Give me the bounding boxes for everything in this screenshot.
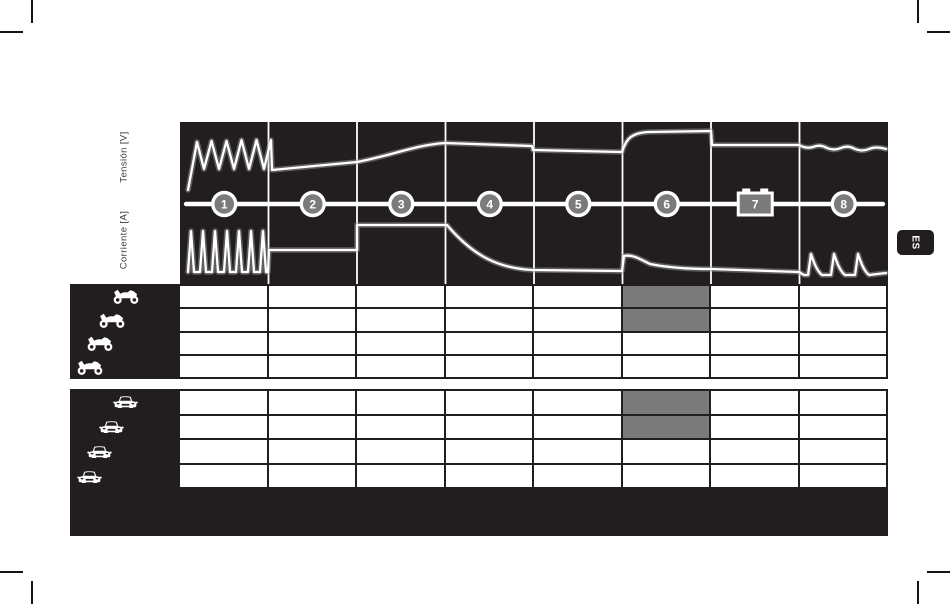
table-cell [623,356,710,377]
table-cell [357,309,444,330]
table-cell [534,465,621,488]
table-cell [180,465,267,488]
table-cell [269,356,356,377]
table-cell [711,333,798,354]
table-cell [800,416,887,439]
crop-mark-bottom-right-v [917,581,919,604]
table-cell [446,333,533,354]
charging-curve-canvas: 12345678 [180,122,888,284]
table-cell [534,286,621,307]
table-cell [711,416,798,439]
table-cell [446,465,533,488]
table-cell [534,333,621,354]
table-cell-highlighted [623,416,710,439]
table-cell [623,440,710,463]
motorcycle-battery-table [70,284,888,379]
motorcycle-table-sidebar [70,284,180,379]
language-tab-es: ES [897,230,934,255]
table-cell [357,333,444,354]
car-icon [86,444,113,460]
table-cell [800,440,887,463]
table-cell [180,356,267,377]
voltage-curve-glow [188,131,886,190]
table-cell [711,465,798,488]
table-cell [446,391,533,414]
motorcycle-icon [76,358,104,376]
step-number: 5 [575,198,582,212]
table-cell [623,333,710,354]
table-cell [269,465,356,488]
step-number: 3 [398,198,405,212]
crop-mark-bottom-right-h [927,571,950,573]
table-cell [269,309,356,330]
table-cell [180,440,267,463]
car-table-sidebar [70,389,180,489]
step-marker-6: 6 [654,191,680,217]
step-marker-1: 1 [211,191,237,217]
voltage-curve [188,131,886,190]
table-cell [800,309,887,330]
table-footer-band [70,489,888,536]
crop-mark-top-left-h [0,31,23,33]
car-icon [76,469,103,485]
table-cell-highlighted [623,286,710,307]
table-cell [269,391,356,414]
voltage-axis-label: Tensión [V] [119,131,130,182]
car-icon [98,419,125,435]
car-table-grid [180,389,888,489]
step-marker-2: 2 [300,191,326,217]
table-cell [534,391,621,414]
table-cell [269,286,356,307]
table-cell [711,286,798,307]
language-tab-label: ES [910,235,921,249]
table-cell [446,416,533,439]
step-marker-7: 7 [738,189,772,216]
table-cell [711,440,798,463]
table-cell [180,286,267,307]
motorcycle-icon [86,334,114,352]
table-cell [800,356,887,377]
table-cell [446,356,533,377]
motorcycle-icon [112,287,140,305]
crop-mark-top-left-v [31,0,33,23]
table-cell [711,309,798,330]
motorcycle-table-grid [180,284,888,379]
crop-mark-bottom-left-v [31,581,33,604]
step-marker-4: 4 [477,191,503,217]
table-cell-highlighted [623,309,710,330]
table-cell [711,356,798,377]
motorcycle-icon [98,311,126,329]
crop-mark-bottom-left-h [0,571,23,573]
table-cell [711,391,798,414]
table-cell [446,309,533,330]
table-cell [800,333,887,354]
step-number: 1 [221,198,228,212]
step-number: 4 [486,198,493,212]
charging-curve-chart: 12345678 [180,122,888,284]
table-cell [357,416,444,439]
manual-page: Tensión [V] Corriente [A] 12345678 ES [0,0,950,604]
car-icon [112,394,139,410]
car-battery-table [70,389,888,489]
step-number: 2 [309,198,316,212]
table-cell [357,286,444,307]
step-number: 6 [663,198,670,212]
table-cell [357,391,444,414]
table-cell [800,391,887,414]
table-cell [357,465,444,488]
step-number: 8 [840,198,847,212]
table-cell [180,309,267,330]
table-cell [446,286,533,307]
table-cell [800,465,887,488]
table-cell [269,440,356,463]
current-axis-label: Corriente [A] [119,211,130,270]
step-marker-8: 8 [831,191,857,217]
step-number: 7 [752,198,759,212]
table-cell [269,416,356,439]
table-cell [534,416,621,439]
table-cell [534,309,621,330]
table-cell [623,465,710,488]
table-cell [357,356,444,377]
step-marker-5: 5 [565,191,591,217]
table-cell [534,440,621,463]
table-cell [534,356,621,377]
crop-mark-top-right-v [917,0,919,23]
table-cell [800,286,887,307]
table-cell [180,333,267,354]
table-cell [180,416,267,439]
table-cell-highlighted [623,391,710,414]
table-cell [446,440,533,463]
table-cell [180,391,267,414]
table-cell [357,440,444,463]
table-cell [269,333,356,354]
step-marker-3: 3 [388,191,414,217]
crop-mark-top-right-h [927,31,950,33]
